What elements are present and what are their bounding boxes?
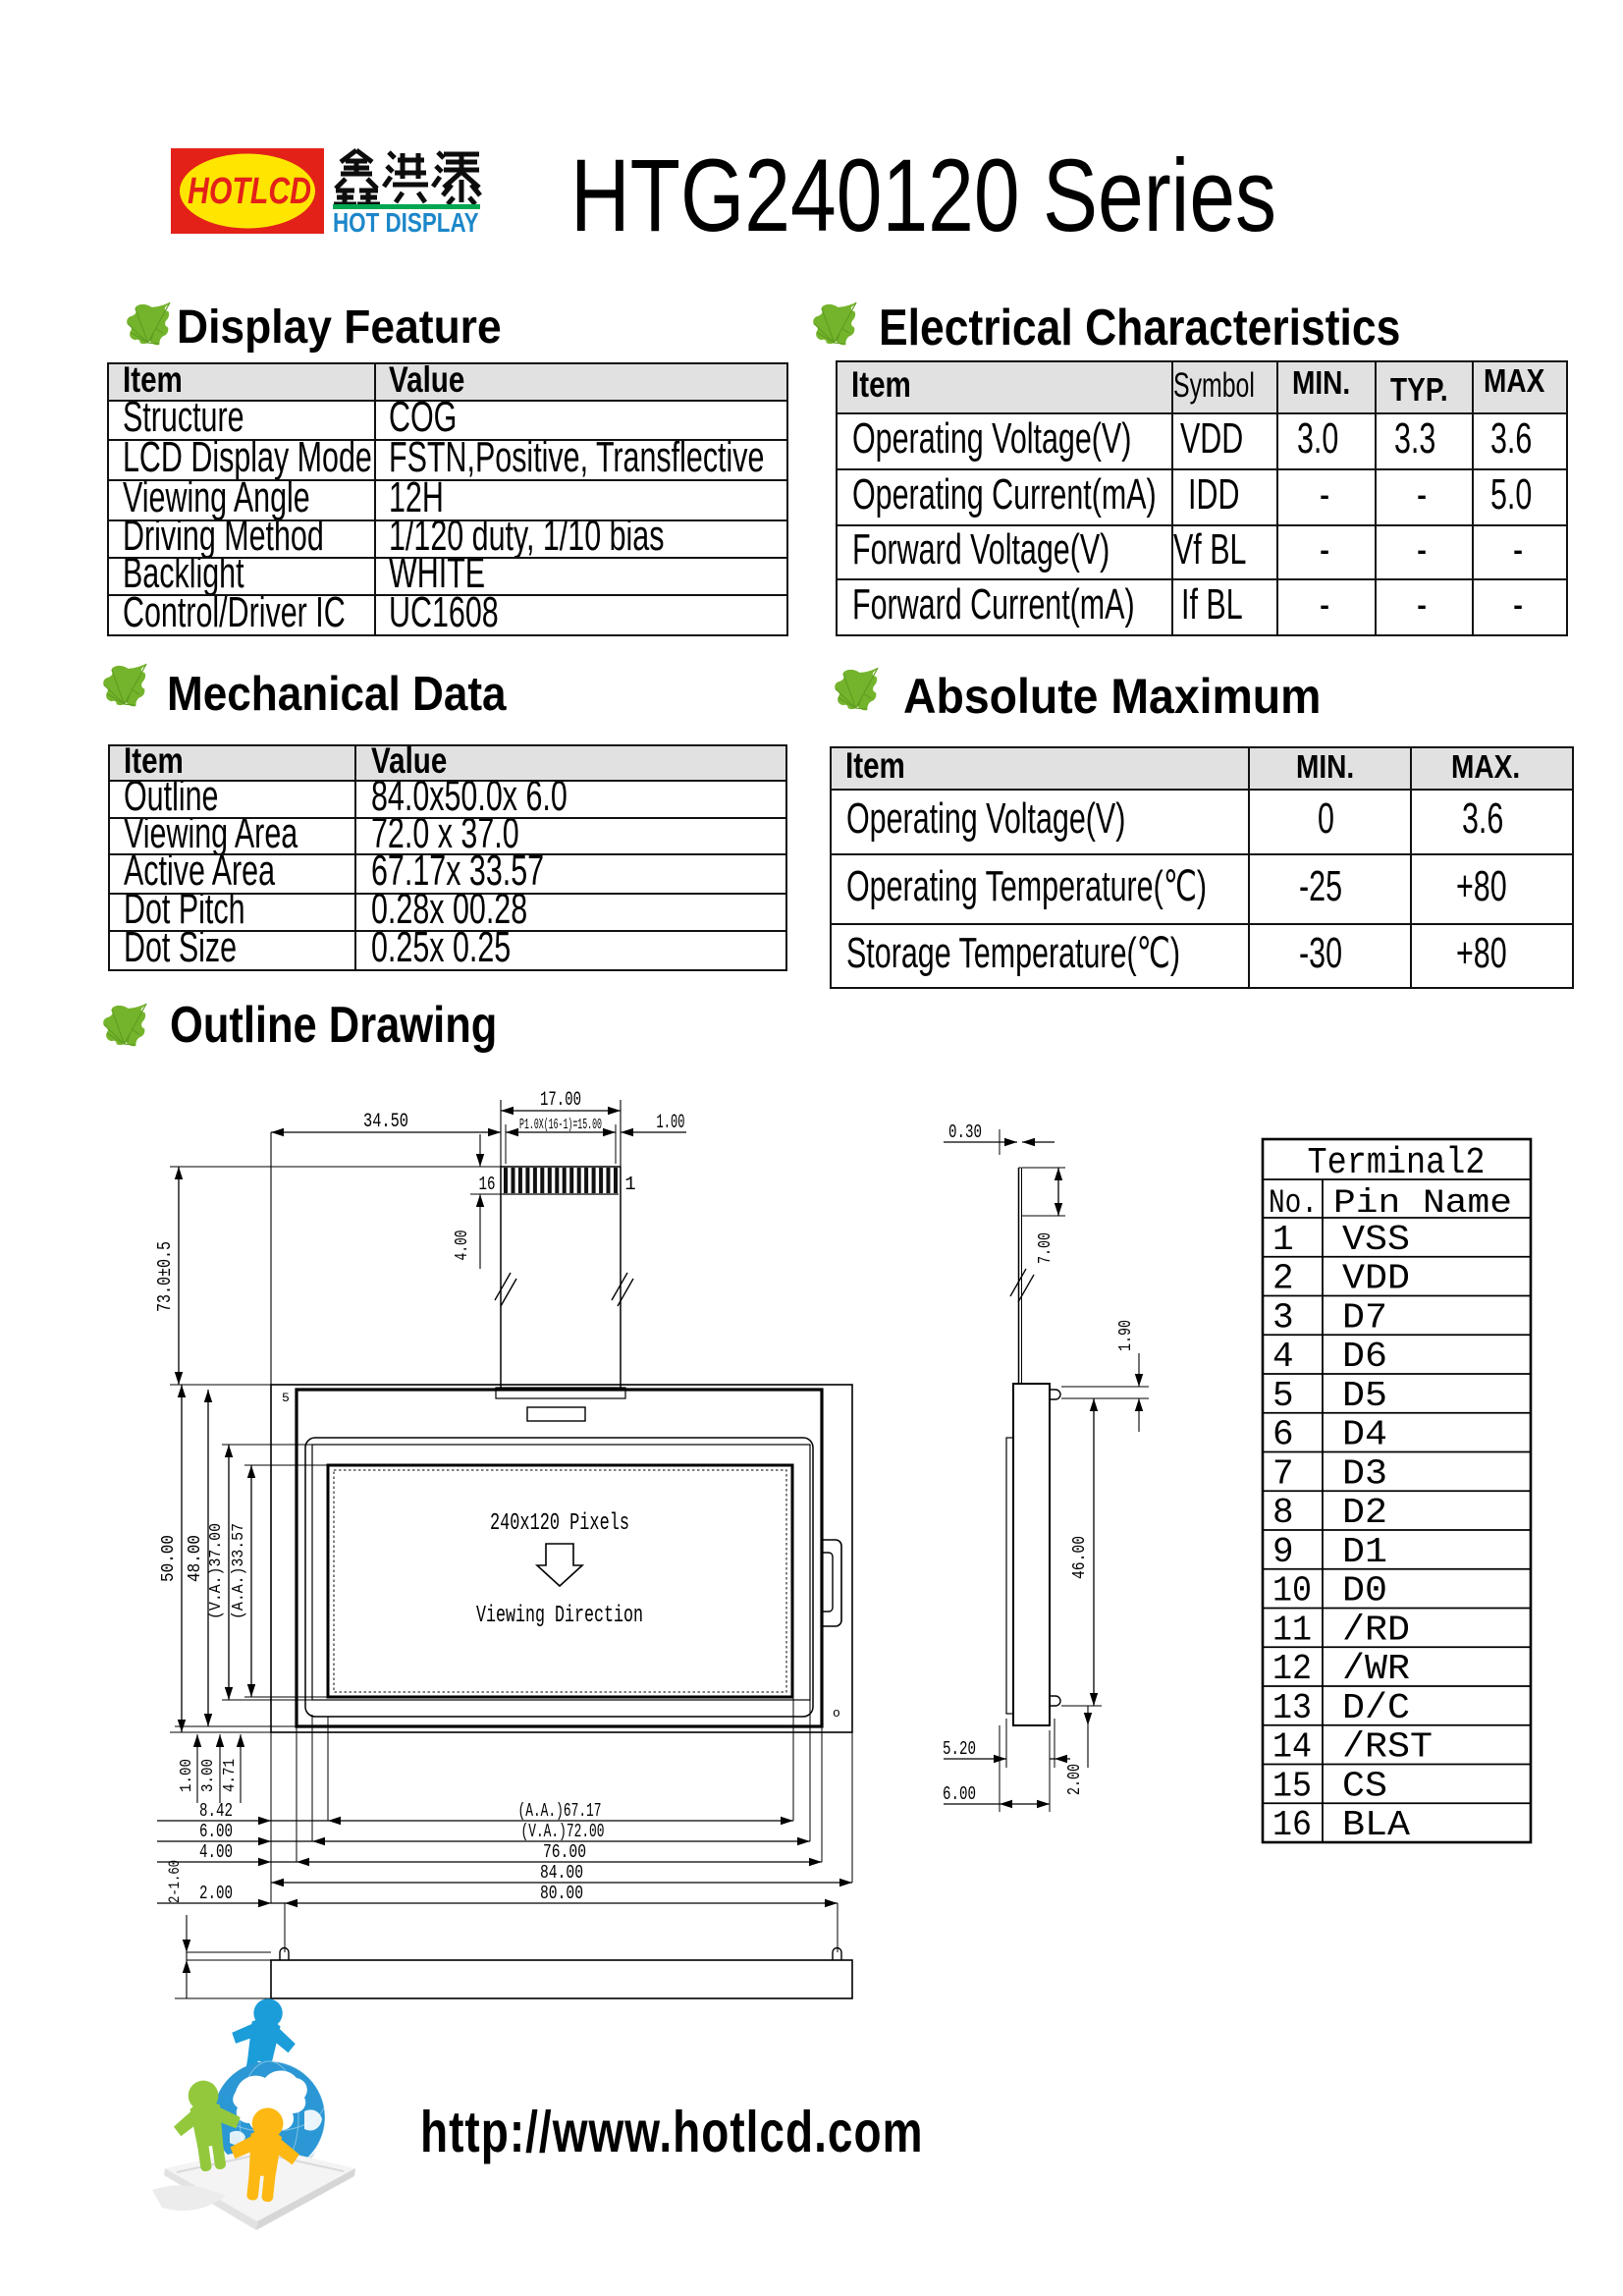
svg-text:2-1.60: 2-1.60 (166, 1860, 184, 1903)
svg-text:15: 15 (1272, 1766, 1312, 1806)
svg-text:4.00: 4.00 (199, 1841, 233, 1863)
svg-text:0.30: 0.30 (948, 1121, 982, 1143)
svg-text:16: 16 (479, 1174, 496, 1195)
svg-text:48.00: 48.00 (186, 1535, 205, 1582)
svg-text:D6: D6 (1342, 1337, 1387, 1377)
svg-text:4.71: 4.71 (221, 1759, 240, 1792)
svg-text:7.00: 7.00 (1036, 1232, 1055, 1264)
svg-text:2: 2 (1272, 1259, 1294, 1299)
svg-text:17.00: 17.00 (540, 1089, 581, 1112)
svg-text:5: 5 (282, 1391, 290, 1405)
svg-text:Viewing Direction: Viewing Direction (476, 1603, 643, 1629)
svg-text:6: 6 (1272, 1415, 1294, 1455)
svg-text:3: 3 (1272, 1297, 1294, 1338)
svg-text:6.00: 6.00 (199, 1821, 233, 1842)
svg-text:VSS: VSS (1342, 1220, 1410, 1260)
svg-text:8: 8 (1272, 1493, 1294, 1533)
svg-text:50.00: 50.00 (159, 1535, 179, 1582)
svg-text:VDD: VDD (1342, 1259, 1410, 1299)
svg-text:46.00: 46.00 (1070, 1536, 1090, 1579)
svg-text:D/C: D/C (1342, 1688, 1410, 1728)
svg-text:1: 1 (1272, 1220, 1294, 1260)
svg-text:5: 5 (1272, 1376, 1294, 1416)
svg-text:11: 11 (1272, 1610, 1312, 1650)
svg-text:2.00: 2.00 (1065, 1764, 1085, 1795)
svg-text:Pin Name: Pin Name (1333, 1185, 1512, 1223)
svg-text:10: 10 (1272, 1571, 1312, 1612)
svg-text:2.00: 2.00 (199, 1883, 233, 1904)
svg-text:BLA: BLA (1342, 1805, 1410, 1845)
svg-text:D7: D7 (1342, 1297, 1387, 1338)
svg-text:4: 4 (1272, 1337, 1294, 1377)
svg-text:13: 13 (1272, 1688, 1312, 1728)
svg-text:12: 12 (1272, 1649, 1312, 1689)
svg-text:9: 9 (1272, 1532, 1294, 1572)
svg-text:4.00: 4.00 (453, 1230, 472, 1261)
svg-text:D4: D4 (1342, 1415, 1387, 1455)
svg-text:/WR: /WR (1342, 1649, 1410, 1689)
svg-text:14: 14 (1272, 1727, 1312, 1768)
svg-text:80.00: 80.00 (540, 1883, 583, 1904)
svg-text:16: 16 (1272, 1805, 1312, 1845)
svg-text:/RD: /RD (1342, 1610, 1410, 1650)
svg-text:No.: No. (1269, 1185, 1318, 1223)
svg-text:D5: D5 (1342, 1376, 1387, 1416)
svg-text:D0: D0 (1342, 1571, 1387, 1612)
svg-text:(A.A.)33.57: (A.A.)33.57 (230, 1523, 248, 1619)
svg-text:240x120 Pixels: 240x120 Pixels (490, 1510, 629, 1537)
svg-text:D3: D3 (1342, 1453, 1387, 1494)
svg-text:7: 7 (1272, 1453, 1294, 1494)
svg-text:CS: CS (1342, 1766, 1387, 1806)
svg-text:P1.0X(16-1)=15.00: P1.0X(16-1)=15.00 (519, 1117, 602, 1133)
svg-text:6.00: 6.00 (943, 1783, 976, 1805)
svg-text:73.0±0.5: 73.0±0.5 (154, 1241, 176, 1312)
svg-text:o: o (833, 1706, 840, 1721)
svg-text:HOTLCD: HOTLCD (188, 171, 311, 212)
svg-text:84.00: 84.00 (540, 1862, 583, 1884)
svg-text:/RST: /RST (1342, 1727, 1433, 1768)
svg-text:1.00: 1.00 (178, 1759, 196, 1792)
svg-text:(A.A.)67.17: (A.A.)67.17 (518, 1800, 602, 1822)
svg-text:(V.A.)37.00: (V.A.)37.00 (207, 1523, 226, 1619)
svg-text:8.42: 8.42 (199, 1800, 233, 1822)
svg-text:(V.A.)72.00: (V.A.)72.00 (521, 1821, 605, 1842)
svg-text:34.50: 34.50 (363, 1111, 408, 1133)
svg-text:76.00: 76.00 (543, 1841, 586, 1863)
svg-text:1: 1 (624, 1174, 635, 1195)
svg-text:D2: D2 (1342, 1493, 1387, 1533)
svg-text:Terminal2: Terminal2 (1308, 1142, 1486, 1184)
svg-text:1.90: 1.90 (1116, 1320, 1136, 1351)
svg-text:D1: D1 (1342, 1532, 1387, 1572)
svg-text:5.20: 5.20 (943, 1738, 976, 1760)
svg-text:3.00: 3.00 (199, 1759, 218, 1792)
svg-text:1.00: 1.00 (657, 1112, 685, 1134)
